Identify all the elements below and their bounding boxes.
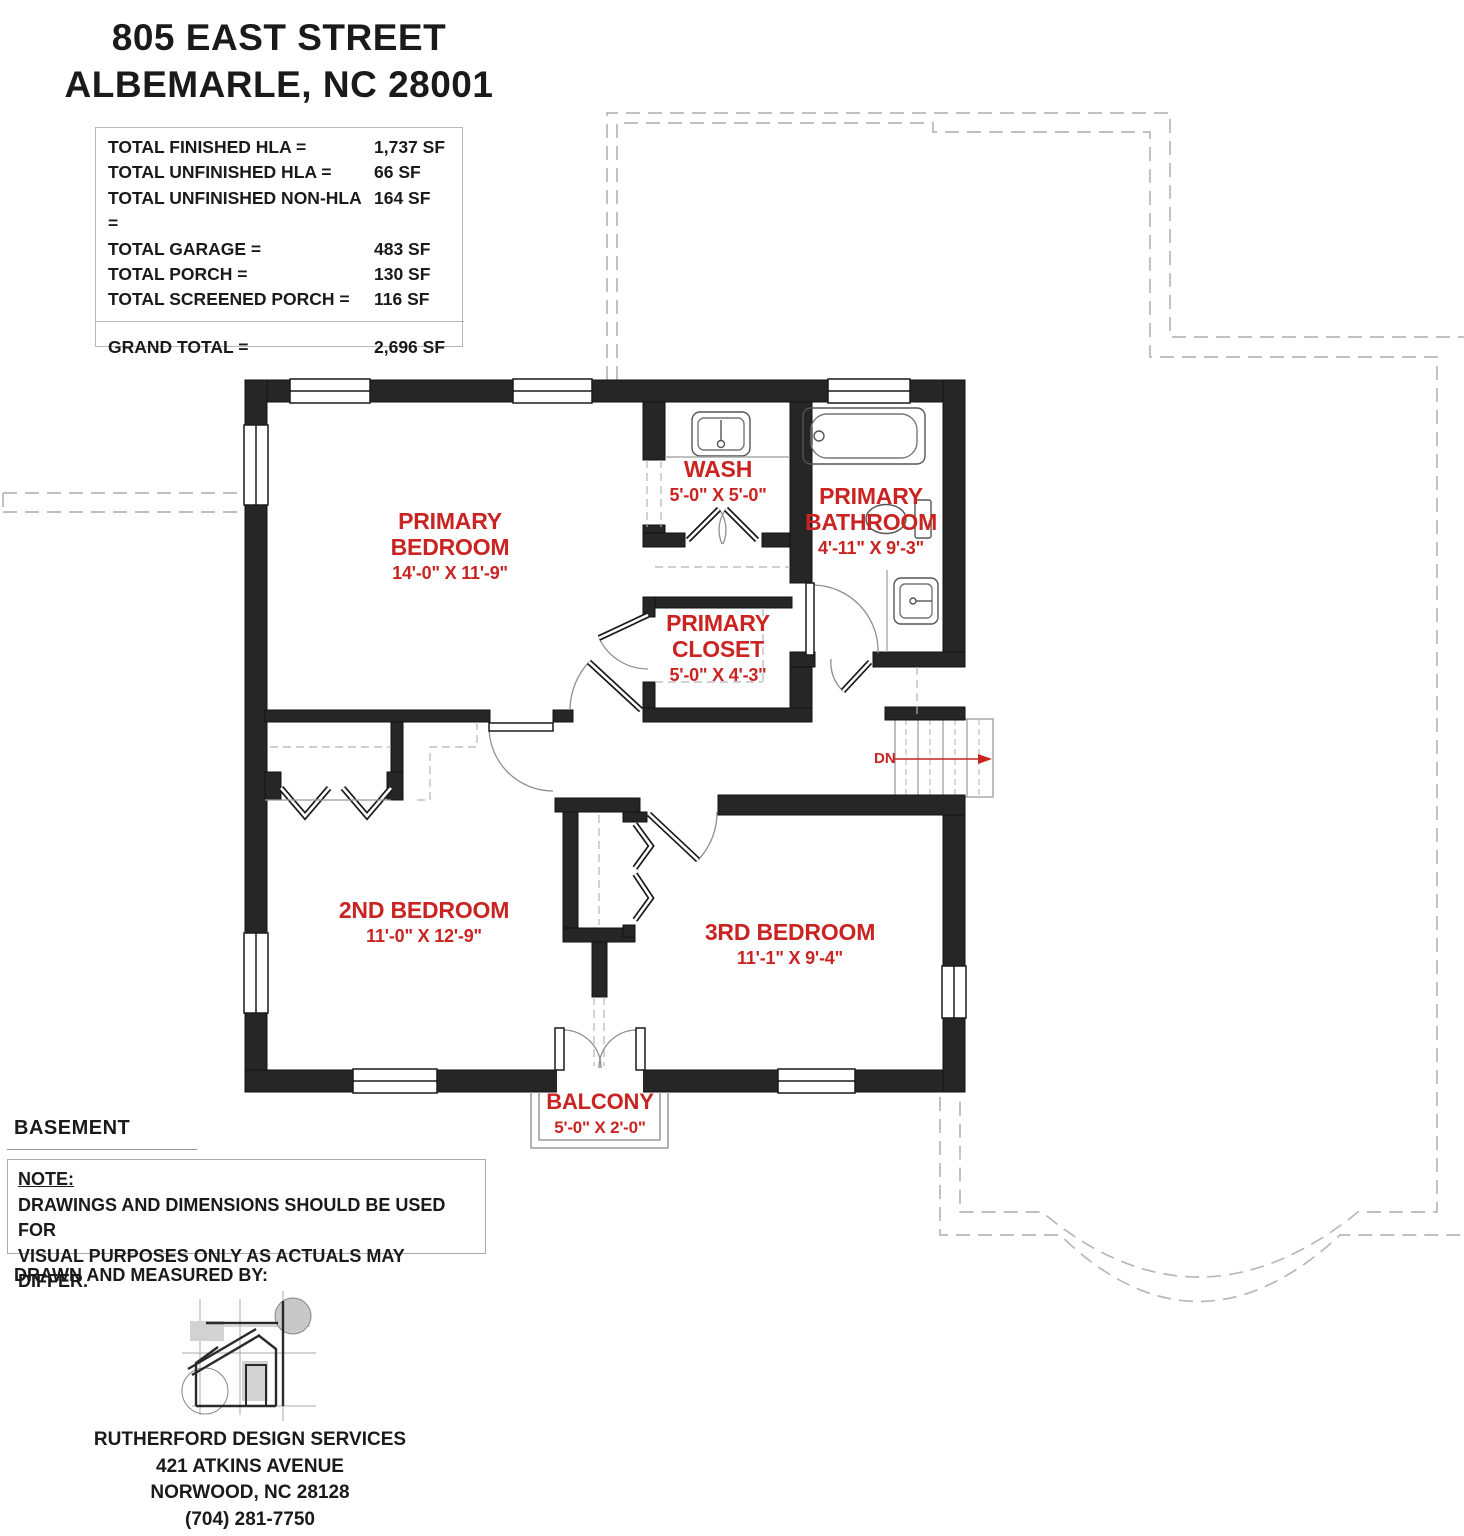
window-left-1 bbox=[244, 425, 268, 505]
grand-total-row: GRAND TOTAL =2,696 SF bbox=[108, 335, 462, 360]
designer-logo bbox=[182, 1291, 316, 1421]
table-row: TOTAL UNFINISHED NON-HLA =164 SF bbox=[108, 186, 462, 237]
stairs-dn-label: DN bbox=[874, 750, 896, 767]
window-top-1 bbox=[290, 379, 370, 403]
table-divider bbox=[96, 321, 464, 322]
stairs bbox=[893, 719, 993, 797]
note-box: NOTE: DRAWINGS AND DIMENSIONS SHOULD BE … bbox=[7, 1159, 486, 1254]
designer-phone: (704) 281-7750 bbox=[55, 1507, 445, 1534]
window-left-2 bbox=[244, 933, 268, 1013]
window-bottom-2 bbox=[778, 1069, 855, 1093]
designer-name: RUTHERFORD DESIGN SERVICES bbox=[55, 1427, 445, 1454]
area-summary-table: TOTAL FINISHED HLA =1,737 SF TOTAL UNFIN… bbox=[95, 127, 463, 347]
bathroom-sink bbox=[887, 570, 938, 652]
room-label-wash: WASH 5'-0" X 5'-0" bbox=[669, 456, 766, 506]
table-row: TOTAL GARAGE =483 SF bbox=[108, 237, 462, 262]
address-line-1: 805 EAST STREET bbox=[0, 14, 558, 61]
table-row: TOTAL SCREENED PORCH =116 SF bbox=[108, 287, 462, 312]
designer-address-2: NORWOOD, NC 28128 bbox=[55, 1480, 445, 1507]
bathtub bbox=[803, 408, 925, 464]
note-heading: NOTE: bbox=[18, 1167, 475, 1193]
room-label-primary-bedroom: PRIMARY BEDROOM 14'-0" X 11'-9" bbox=[391, 508, 510, 584]
note-line-1: DRAWINGS AND DIMENSIONS SHOULD BE USED F… bbox=[18, 1193, 475, 1244]
floor-level-label: BASEMENT bbox=[14, 1117, 130, 1140]
window-bottom-1 bbox=[353, 1069, 437, 1093]
table-row: TOTAL PORCH =130 SF bbox=[108, 262, 462, 287]
room-label-primary-closet: PRIMARY CLOSET 5'-0" X 4'-3" bbox=[666, 610, 770, 686]
table-row: TOTAL UNFINISHED HLA =66 SF bbox=[108, 160, 462, 185]
room-label-balcony: BALCONY 5'-0" X 2'-0" bbox=[546, 1089, 653, 1139]
sheet-title: 805 EAST STREET ALBEMARLE, NC 28001 bbox=[0, 14, 558, 108]
window-top-2 bbox=[513, 379, 592, 403]
address-line-2: ALBEMARLE, NC 28001 bbox=[0, 61, 558, 108]
window-top-3 bbox=[828, 379, 910, 403]
floor-plan-sheet: 805 EAST STREET ALBEMARLE, NC 28001 TOTA… bbox=[0, 0, 1464, 1536]
table-row: TOTAL FINISHED HLA =1,737 SF bbox=[108, 135, 462, 160]
wash-sink bbox=[665, 412, 790, 457]
room-label-third-bedroom: 3RD BEDROOM 11'-1" X 9'-4" bbox=[705, 919, 875, 969]
drawn-by-label: DRAWN AND MEASURED BY: bbox=[14, 1265, 268, 1286]
room-label-primary-bathroom: PRIMARY BATHROOM 4'-11" X 9'-3" bbox=[805, 483, 937, 559]
room-label-second-bedroom: 2ND BEDROOM 11'-0" X 12'-9" bbox=[339, 897, 509, 947]
window-right-1 bbox=[942, 966, 966, 1018]
designer-info: RUTHERFORD DESIGN SERVICES 421 ATKINS AV… bbox=[55, 1427, 445, 1533]
doors bbox=[265, 509, 878, 1070]
floor-label-rule bbox=[7, 1149, 197, 1150]
designer-address-1: 421 ATKINS AVENUE bbox=[55, 1454, 445, 1481]
